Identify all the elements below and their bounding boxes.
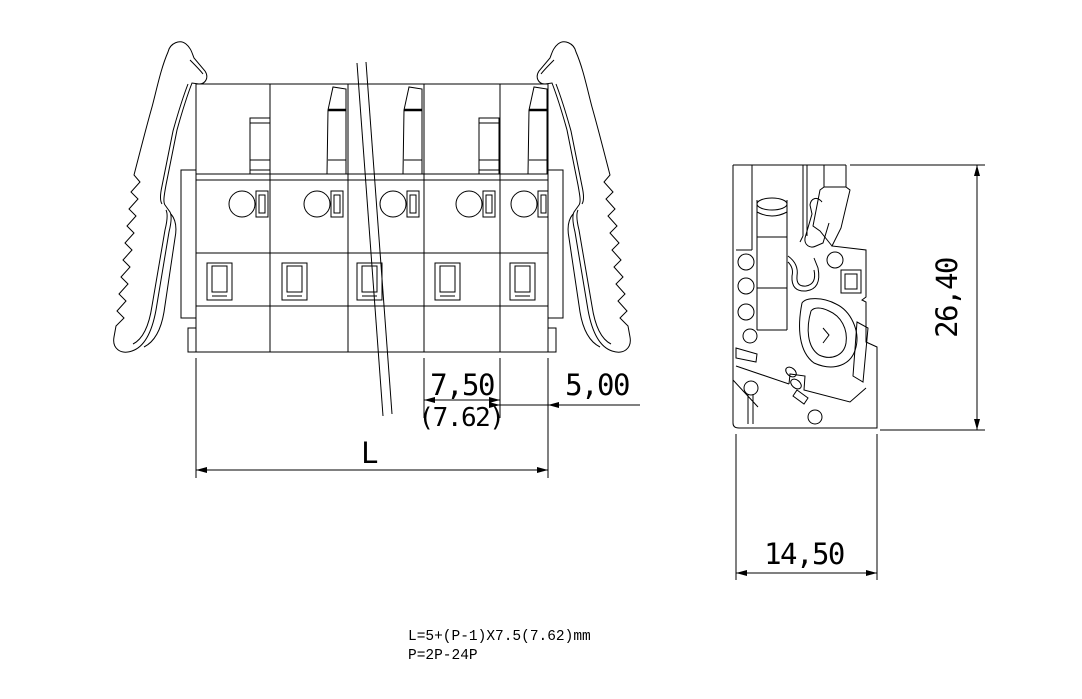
actuation-chamber (736, 165, 807, 330)
dim-depth-label: 14,50 (764, 537, 844, 571)
front-view (114, 42, 631, 416)
break-lines (357, 62, 392, 416)
dimension-depth: 14,50 (736, 434, 877, 580)
lower-mechanism (733, 348, 866, 424)
dimension-pitch: 7,50 (7.62) (419, 358, 504, 433)
release-lever-left (114, 42, 207, 352)
dim-end-offset-label: 5,00 (565, 368, 629, 402)
terminal-block-drawing: 7,50 (7.62) 5,00 L 26,40 14,50 L=5+(P-1)… (0, 0, 1082, 699)
dimension-end-offset: 5,00 (489, 368, 640, 408)
drawing-sheet: 7,50 (7.62) 5,00 L 26,40 14,50 L=5+(P-1)… (0, 0, 1082, 699)
clamp-spring (800, 299, 868, 382)
note-pole-range: P=2P-24P (408, 648, 478, 664)
flange-left (181, 170, 196, 318)
dim-length-label: L (361, 436, 378, 470)
wire-funnel (788, 256, 819, 291)
note-length-formula: L=5+(P-1)X7.5(7.62)mm (408, 629, 591, 645)
dimension-height: 26,40 (850, 165, 985, 430)
housing-front (181, 84, 563, 352)
flange-right (548, 170, 563, 318)
side-view (733, 165, 877, 428)
pusher-buttons (250, 87, 547, 174)
release-lever-right (537, 42, 630, 352)
housing-side-outline (733, 165, 877, 428)
test-port-square (841, 270, 861, 293)
notes: L=5+(P-1)X7.5(7.62)mm P=2P-24P (408, 629, 591, 664)
dim-pitch-label: 7,50 (430, 368, 494, 402)
wire-entry-windows (207, 263, 535, 300)
dim-height-label: 26,40 (930, 258, 964, 338)
